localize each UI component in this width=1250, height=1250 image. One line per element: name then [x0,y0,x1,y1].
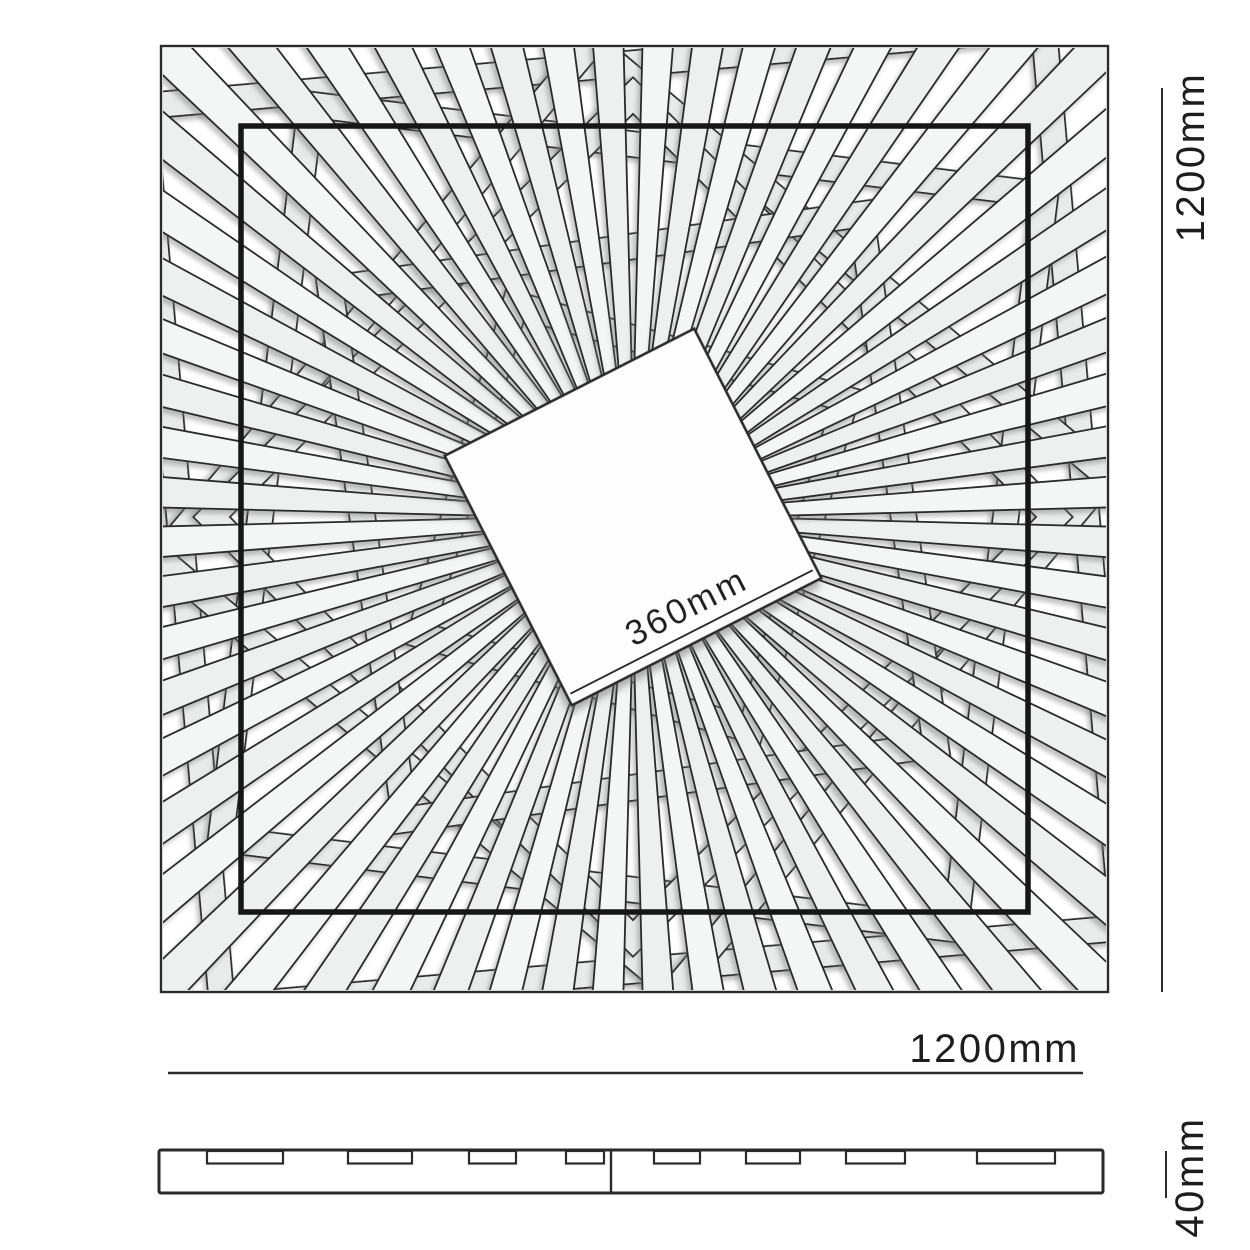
width-dimension-label: 1200mm [909,1027,1080,1071]
height-dimension-label: 1200mm [1169,72,1213,243]
profile-notch [977,1151,1055,1164]
panel-dimension-diagram: 360mm 1200mm 1200mm 40mm [0,0,1250,1250]
thickness-dimension: 40mm [1166,1116,1212,1237]
profile-notch [348,1151,412,1164]
profile-notch [207,1151,283,1164]
profile-notch [469,1151,516,1164]
profile-notch [566,1151,604,1164]
height-dimension: 1200mm [1162,72,1213,992]
profile-notch [846,1151,905,1164]
profile-outline [159,1150,1103,1193]
profile-notch [654,1151,700,1164]
profile-notch [746,1151,800,1164]
diagram-canvas: 360mm 1200mm 1200mm 40mm [0,0,1250,1250]
thickness-dimension-label: 40mm [1168,1116,1212,1237]
width-dimension: 1200mm [168,1027,1083,1073]
side-profile-drawing [159,1150,1103,1193]
